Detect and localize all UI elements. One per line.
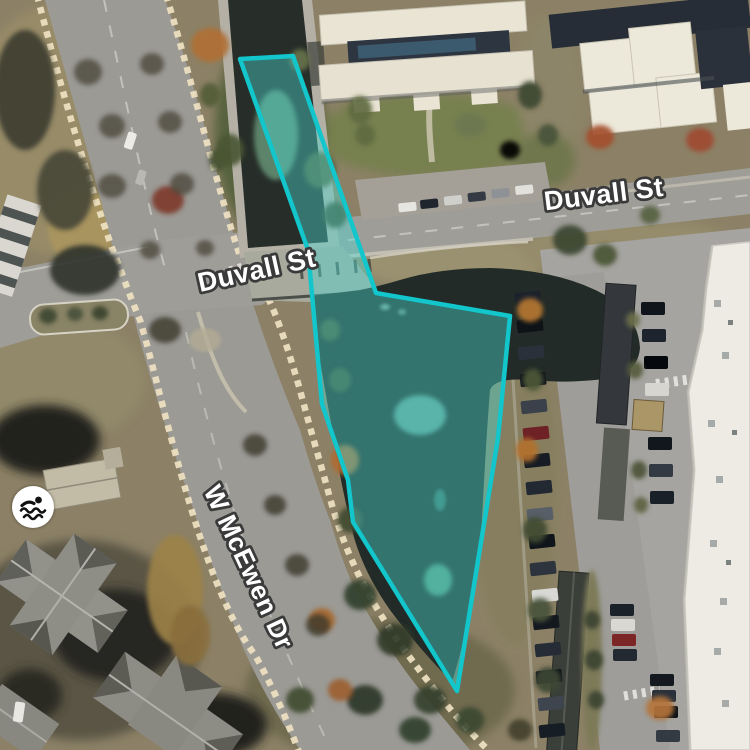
street-label-duvall-west: Duvall St xyxy=(195,243,319,298)
selection-polygon[interactable] xyxy=(240,56,510,691)
map-overlay: Duvall St Duvall St W McEwen Dr xyxy=(0,0,750,750)
swimmer-icon xyxy=(12,486,54,528)
swimming-poi[interactable] xyxy=(12,486,54,528)
map-canvas[interactable]: Duvall St Duvall St W McEwen Dr xyxy=(0,0,750,750)
street-label-duvall-east: Duvall St xyxy=(542,172,665,216)
street-label-mcewen: W McEwen Dr xyxy=(198,480,300,653)
